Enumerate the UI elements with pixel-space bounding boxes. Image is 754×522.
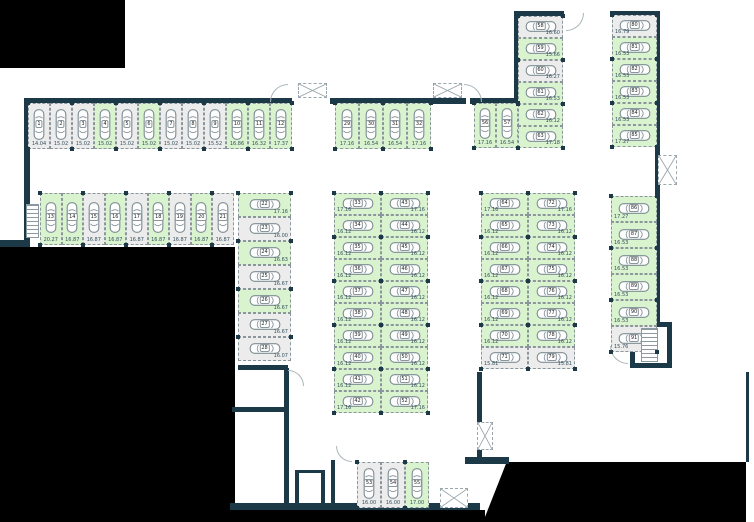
stall-size: 17.27 xyxy=(615,139,629,145)
parking-stall-67[interactable]: 6716.12 xyxy=(481,259,528,281)
stall-number: 84 xyxy=(629,109,639,117)
stall-size: 16.07 xyxy=(274,353,288,359)
stall-size: 16.86 xyxy=(230,141,244,147)
stall-number: 36 xyxy=(352,265,362,273)
stall-size: 16.60 xyxy=(546,30,560,36)
stall-size: 16.12 xyxy=(337,361,351,367)
stall-number: 88 xyxy=(629,256,639,264)
stall-number: 16 xyxy=(110,213,120,221)
pillar xyxy=(289,335,293,339)
stall-number: 78 xyxy=(546,331,556,339)
parking-stall-70[interactable]: 7016.12 xyxy=(481,325,528,347)
stall-number: 52 xyxy=(399,397,409,405)
stall-number: 90 xyxy=(629,308,639,316)
shaft-hatch-north-b xyxy=(433,83,462,98)
parking-stall-5[interactable]: 515.02 xyxy=(116,103,138,149)
stall-size: 16.00 xyxy=(386,500,400,506)
stall-number: 82 xyxy=(629,65,639,73)
parking-stall-23[interactable]: 2316.00 xyxy=(238,217,291,241)
stall-size: 16.12 xyxy=(411,361,425,367)
shaft-hatch-south-a xyxy=(477,422,493,450)
stall-size: 16.54 xyxy=(388,141,402,147)
parking-stall-55[interactable]: 5517.00 xyxy=(405,462,429,508)
stall-size: 16.12 xyxy=(484,273,498,279)
parking-stall-83[interactable]: 8316.53 xyxy=(612,81,657,103)
stall-size: 16.87 xyxy=(87,237,101,243)
pillar xyxy=(167,191,171,195)
pillar xyxy=(429,101,433,105)
parking-stall-16[interactable]: 1616.87 xyxy=(105,193,127,245)
pillar xyxy=(236,191,240,195)
parking-stall-13[interactable]: 1320.27 xyxy=(40,193,62,245)
pillar xyxy=(426,323,430,327)
parking-stall-44[interactable]: 4416.12 xyxy=(381,215,428,237)
pillar xyxy=(290,101,294,105)
pillar xyxy=(210,191,214,195)
stall-size: 15.02 xyxy=(142,141,156,147)
stall-number: 57 xyxy=(502,119,512,127)
parking-stall-56[interactable]: 5617.16 xyxy=(474,103,496,148)
parking-stall-68[interactable]: 6816.12 xyxy=(481,281,528,303)
shaft-hatch-east xyxy=(658,155,677,185)
stall-number: 42 xyxy=(352,397,362,405)
parking-stall-6[interactable]: 615.02 xyxy=(138,103,160,149)
parking-stall-82[interactable]: 8216.53 xyxy=(612,59,657,81)
pillar xyxy=(236,335,240,339)
parking-stall-3[interactable]: 315.02 xyxy=(72,103,94,149)
pillar xyxy=(426,411,430,415)
parking-stall-29[interactable]: 2917.16 xyxy=(335,103,359,149)
pillar xyxy=(526,235,530,239)
parking-stall-30[interactable]: 3016.54 xyxy=(359,103,383,149)
parking-stall-66[interactable]: 6616.12 xyxy=(481,237,528,259)
stall-size: 15.02 xyxy=(76,141,90,147)
stalls-layer: 114.04215.02315.02415.02515.02615.02715.… xyxy=(0,0,754,522)
stall-size: 20.27 xyxy=(44,237,58,243)
pillar xyxy=(202,101,206,105)
parking-stall-1[interactable]: 114.04 xyxy=(28,103,50,149)
parking-stall-60[interactable]: 6016.27 xyxy=(518,60,563,82)
stall-size: 16.87 xyxy=(65,237,79,243)
stall-size: 15.02 xyxy=(98,141,112,147)
parking-stall-89[interactable]: 8916.53 xyxy=(611,274,657,300)
pillar xyxy=(609,350,613,354)
pillar xyxy=(516,14,520,18)
stall-size: 17.16 xyxy=(340,141,354,147)
pillar xyxy=(26,147,30,151)
pillar xyxy=(379,279,383,283)
parking-stall-27[interactable]: 2716.67 xyxy=(238,313,291,337)
parking-stall-19[interactable]: 1916.87 xyxy=(169,193,191,245)
stall-number: 39 xyxy=(352,331,362,339)
parking-stall-88[interactable]: 8816.53 xyxy=(611,248,657,274)
pillar xyxy=(38,191,42,195)
pillar xyxy=(355,460,359,464)
stall-number: 9 xyxy=(211,120,218,128)
stall-size: 17.16 xyxy=(412,141,426,147)
stall-number: 40 xyxy=(352,353,362,361)
parking-stall-35[interactable]: 3516.12 xyxy=(334,237,381,259)
stall-size: 17.16 xyxy=(411,207,425,213)
pillar xyxy=(333,147,337,151)
pillar xyxy=(561,58,565,62)
stall-size: 16.32 xyxy=(252,141,266,147)
pillar xyxy=(38,243,42,247)
stall-size: 17.16 xyxy=(558,207,572,213)
pillar xyxy=(81,191,85,195)
pillar xyxy=(289,287,293,291)
pillar xyxy=(573,279,577,283)
pillar xyxy=(379,323,383,327)
stall-size: 15.76 xyxy=(614,344,628,350)
pillar xyxy=(479,191,483,195)
parking-stall-36[interactable]: 3616.12 xyxy=(334,259,381,281)
stall-number: 14 xyxy=(67,213,77,221)
stall-number: 28 xyxy=(259,344,269,352)
parking-stall-28[interactable]: 2816.07 xyxy=(238,337,291,361)
stall-number: 86 xyxy=(629,204,639,212)
pillar xyxy=(124,191,128,195)
pillar xyxy=(379,367,383,371)
stall-size: 16.12 xyxy=(558,251,572,257)
pillar xyxy=(26,101,30,105)
pillar xyxy=(332,411,336,415)
stall-number: 25 xyxy=(259,272,269,280)
parking-stall-84[interactable]: 8416.53 xyxy=(612,103,657,125)
parking-stall-26[interactable]: 2616.67 xyxy=(238,289,291,313)
parking-stall-4[interactable]: 415.02 xyxy=(94,103,116,149)
parking-stall-71[interactable]: 7115.81 xyxy=(481,347,528,369)
parking-stall-11[interactable]: 1116.32 xyxy=(248,103,270,149)
stall-size: 17.16 xyxy=(337,207,351,213)
stall-number: 65 xyxy=(499,221,509,229)
stall-size: 16.53 xyxy=(615,95,629,101)
pillar xyxy=(202,147,206,151)
stall-number: 60 xyxy=(535,66,545,74)
stall-number: 18 xyxy=(153,213,163,221)
pillar xyxy=(332,323,336,327)
stall-number: 61 xyxy=(535,88,545,96)
parking-stall-24[interactable]: 2416.63 xyxy=(238,241,291,265)
parking-stall-63[interactable]: 6317.18 xyxy=(518,126,563,148)
pillar xyxy=(70,101,74,105)
stall-size: 16.54 xyxy=(500,140,514,146)
stall-number: 53 xyxy=(364,479,374,487)
stall-number: 64 xyxy=(499,199,509,207)
parking-stall-86[interactable]: 8617.27 xyxy=(611,196,657,222)
stall-size: 16.87 xyxy=(108,237,122,243)
stall-number: 79 xyxy=(546,353,556,361)
parking-stall-74[interactable]: 7416.12 xyxy=(528,237,575,259)
stall-number: 4 xyxy=(101,120,108,128)
pillar xyxy=(472,146,476,150)
stall-number: 91 xyxy=(629,334,639,342)
pillar xyxy=(573,235,577,239)
parking-stall-15[interactable]: 1516.87 xyxy=(83,193,105,245)
stall-size: 16.53 xyxy=(614,266,628,272)
parking-stall-57[interactable]: 5716.54 xyxy=(496,103,518,148)
parking-stall-17[interactable]: 1716.87 xyxy=(126,193,148,245)
parking-stall-64[interactable]: 6417.16 xyxy=(481,193,528,215)
stall-size: 16.00 xyxy=(274,233,288,239)
parking-stall-32[interactable]: 3217.16 xyxy=(407,103,431,149)
stall-number: 77 xyxy=(546,309,556,317)
pillar xyxy=(610,145,614,149)
pillar xyxy=(655,57,659,61)
stall-size: 16.12 xyxy=(558,295,572,301)
stall-size: 17.18 xyxy=(546,140,560,146)
stall-size: 16.12 xyxy=(484,251,498,257)
stall-size: 17.16 xyxy=(484,207,498,213)
stall-size: 16.12 xyxy=(337,317,351,323)
parking-stall-12[interactable]: 1217.37 xyxy=(270,103,292,149)
pillar xyxy=(479,235,483,239)
stall-number: 69 xyxy=(499,309,509,317)
stall-number: 83 xyxy=(629,87,639,95)
stall-size: 16.12 xyxy=(411,251,425,257)
stall-size: 16.12 xyxy=(411,273,425,279)
stall-number: 74 xyxy=(546,243,556,251)
stall-size: 16.87 xyxy=(194,237,208,243)
pillar xyxy=(573,367,577,371)
pillar xyxy=(426,367,430,371)
stall-size: 16.12 xyxy=(558,229,572,235)
stall-number: 30 xyxy=(366,120,376,128)
stall-number: 2 xyxy=(57,120,64,128)
pillar xyxy=(479,279,483,283)
stall-size: 16.12 xyxy=(337,251,351,257)
parking-stall-2[interactable]: 215.02 xyxy=(50,103,72,149)
parking-stall-81[interactable]: 8116.53 xyxy=(612,37,657,59)
stall-number: 15 xyxy=(89,213,99,221)
stall-size: 15.02 xyxy=(120,141,134,147)
pillar xyxy=(81,243,85,247)
pillar xyxy=(114,101,118,105)
parking-stall-49[interactable]: 4916.12 xyxy=(381,325,428,347)
parking-stall-25[interactable]: 2516.67 xyxy=(238,265,291,289)
stall-size: 16.87 xyxy=(173,237,187,243)
stall-number: 43 xyxy=(399,199,409,207)
shaft-hatch-north-a xyxy=(298,83,327,98)
stall-number: 54 xyxy=(388,479,398,487)
pillar xyxy=(70,147,74,151)
stall-size: 16.12 xyxy=(484,295,498,301)
stall-size: 16.87 xyxy=(151,237,165,243)
stall-number: 5 xyxy=(123,120,130,128)
pillar xyxy=(610,101,614,105)
pillar xyxy=(610,13,614,17)
stall-size: 16.53 xyxy=(615,117,629,123)
stall-size: 16.87 xyxy=(216,237,230,243)
pillar xyxy=(526,367,530,371)
parking-stall-38[interactable]: 3816.12 xyxy=(334,303,381,325)
stall-size: 17.00 xyxy=(410,500,424,506)
pillar xyxy=(526,323,530,327)
stall-number: 85 xyxy=(629,131,639,139)
pillar xyxy=(332,367,336,371)
stall-size: 16.12 xyxy=(411,295,425,301)
stall-number: 32 xyxy=(414,120,424,128)
pillar xyxy=(655,350,659,354)
stall-number: 12 xyxy=(276,120,286,128)
parking-stall-79[interactable]: 7915.81 xyxy=(528,347,575,369)
parking-stall-75[interactable]: 7516.12 xyxy=(528,259,575,281)
pillar xyxy=(236,239,240,243)
parking-stall-85[interactable]: 8517.27 xyxy=(612,125,657,147)
stall-number: 7 xyxy=(167,120,174,128)
parking-stall-48[interactable]: 4816.12 xyxy=(381,303,428,325)
stall-number: 10 xyxy=(232,120,242,128)
pillar xyxy=(516,58,520,62)
pillar xyxy=(210,243,214,247)
stall-size: 16.12 xyxy=(558,339,572,345)
pillar xyxy=(114,147,118,151)
stall-number: 81 xyxy=(629,43,639,51)
parking-stall-9[interactable]: 915.52 xyxy=(204,103,226,149)
stall-size: 16.53 xyxy=(546,96,560,102)
stall-number: 87 xyxy=(629,230,639,238)
parking-stall-40[interactable]: 4016.12 xyxy=(334,347,381,369)
parking-stall-20[interactable]: 2016.87 xyxy=(191,193,213,245)
parking-stall-41[interactable]: 4116.12 xyxy=(334,369,381,391)
stairs-west-icon xyxy=(26,204,39,238)
parking-stall-10[interactable]: 1016.86 xyxy=(226,103,248,149)
stall-number: 62 xyxy=(535,110,545,118)
parking-stall-14[interactable]: 1416.87 xyxy=(62,193,84,245)
pillar xyxy=(381,147,385,151)
stall-size: 16.53 xyxy=(614,292,628,298)
stall-size: 16.63 xyxy=(274,257,288,263)
pillar xyxy=(381,101,385,105)
stall-size: 16.53 xyxy=(614,240,628,246)
stall-number: 24 xyxy=(259,248,269,256)
stall-number: 67 xyxy=(499,265,509,273)
stall-size: 16.67 xyxy=(274,329,288,335)
pillar xyxy=(516,102,520,106)
parking-stall-22[interactable]: 2217.16 xyxy=(238,193,291,217)
stall-size: 17.16 xyxy=(411,405,425,411)
stall-size: 17.27 xyxy=(614,214,628,220)
parking-stall-18[interactable]: 1816.87 xyxy=(148,193,170,245)
parking-stall-76[interactable]: 7616.12 xyxy=(528,281,575,303)
parking-stall-65[interactable]: 6516.12 xyxy=(481,215,528,237)
pillar xyxy=(333,101,337,105)
parking-stall-51[interactable]: 5116.12 xyxy=(381,369,428,391)
stall-size: 15.66 xyxy=(546,52,560,58)
stall-number: 72 xyxy=(546,199,556,207)
pillar xyxy=(526,191,530,195)
parking-stall-45[interactable]: 4516.12 xyxy=(381,237,428,259)
parking-stall-43[interactable]: 4317.16 xyxy=(381,193,428,215)
parking-stall-73[interactable]: 7316.12 xyxy=(528,215,575,237)
parking-stall-8[interactable]: 815.02 xyxy=(182,103,204,149)
stall-number: 35 xyxy=(352,243,362,251)
pillar xyxy=(124,243,128,247)
parking-stall-39[interactable]: 3916.12 xyxy=(334,325,381,347)
stall-number: 46 xyxy=(399,265,409,273)
stall-size: 15.52 xyxy=(208,141,222,147)
stall-number: 17 xyxy=(132,213,142,221)
stall-size: 16.12 xyxy=(411,383,425,389)
pillar xyxy=(561,146,565,150)
parking-stall-58[interactable]: 5816.60 xyxy=(518,16,563,38)
pillar xyxy=(332,235,336,239)
pillar xyxy=(246,147,250,151)
stall-size: 16.53 xyxy=(615,51,629,57)
stall-number: 31 xyxy=(390,120,400,128)
parking-stall-80[interactable]: 8016.79 xyxy=(612,15,657,37)
parking-stall-33[interactable]: 3317.16 xyxy=(334,193,381,215)
parking-stall-50[interactable]: 5016.12 xyxy=(381,347,428,369)
pillar xyxy=(158,101,162,105)
parking-stall-31[interactable]: 3116.54 xyxy=(383,103,407,149)
pillar xyxy=(655,13,659,17)
parking-stall-34[interactable]: 3416.12 xyxy=(334,215,381,237)
pillar xyxy=(479,367,483,371)
stall-size: 16.12 xyxy=(337,383,351,389)
parking-stall-42[interactable]: 4217.16 xyxy=(334,391,381,413)
parking-stall-77[interactable]: 7716.12 xyxy=(528,303,575,325)
pillar xyxy=(655,246,659,250)
stall-size: 16.12 xyxy=(411,339,425,345)
parking-stall-90[interactable]: 9016.53 xyxy=(611,300,657,326)
stall-number: 37 xyxy=(352,287,362,295)
stall-size: 16.12 xyxy=(484,339,498,345)
parking-stall-59[interactable]: 5915.66 xyxy=(518,38,563,60)
pillar xyxy=(355,506,359,510)
pillar xyxy=(609,194,613,198)
stall-number: 3 xyxy=(79,120,86,128)
parking-stall-53[interactable]: 5316.00 xyxy=(357,462,381,508)
parking-stall-69[interactable]: 6916.12 xyxy=(481,303,528,325)
stall-number: 63 xyxy=(535,132,545,140)
stall-size: 15.81 xyxy=(484,361,498,367)
parking-stall-72[interactable]: 7217.16 xyxy=(528,193,575,215)
stall-number: 47 xyxy=(399,287,409,295)
pillar xyxy=(379,411,383,415)
parking-stall-52[interactable]: 5217.16 xyxy=(381,391,428,413)
stall-number: 49 xyxy=(399,331,409,339)
stall-size: 16.12 xyxy=(337,339,351,345)
stall-size: 17.16 xyxy=(337,405,351,411)
stall-number: 50 xyxy=(399,353,409,361)
stall-number: 23 xyxy=(259,224,269,232)
stall-size: 16.12 xyxy=(411,317,425,323)
parking-stall-47[interactable]: 4716.12 xyxy=(381,281,428,303)
parking-stall-46[interactable]: 4616.12 xyxy=(381,259,428,281)
stall-size: 16.67 xyxy=(274,305,288,311)
stall-size: 16.12 xyxy=(337,273,351,279)
stall-number: 89 xyxy=(629,282,639,290)
parking-stall-61[interactable]: 6116.53 xyxy=(518,82,563,104)
stall-size: 15.02 xyxy=(54,141,68,147)
stall-number: 26 xyxy=(259,296,269,304)
pillar xyxy=(573,191,577,195)
stall-size: 16.79 xyxy=(615,29,629,35)
pillar xyxy=(289,239,293,243)
parking-stall-87[interactable]: 8716.53 xyxy=(611,222,657,248)
pillar xyxy=(655,145,659,149)
parking-stall-37[interactable]: 3716.12 xyxy=(334,281,381,303)
parking-stall-21[interactable]: 2116.87 xyxy=(212,193,234,245)
stall-size: 16.27 xyxy=(546,74,560,80)
stall-size: 16.12 xyxy=(484,229,498,235)
parking-stall-62[interactable]: 6216.12 xyxy=(518,104,563,126)
parking-stall-54[interactable]: 5416.00 xyxy=(381,462,405,508)
parking-stall-78[interactable]: 7816.12 xyxy=(528,325,575,347)
parking-stall-7[interactable]: 715.02 xyxy=(160,103,182,149)
stall-number: 70 xyxy=(499,331,509,339)
